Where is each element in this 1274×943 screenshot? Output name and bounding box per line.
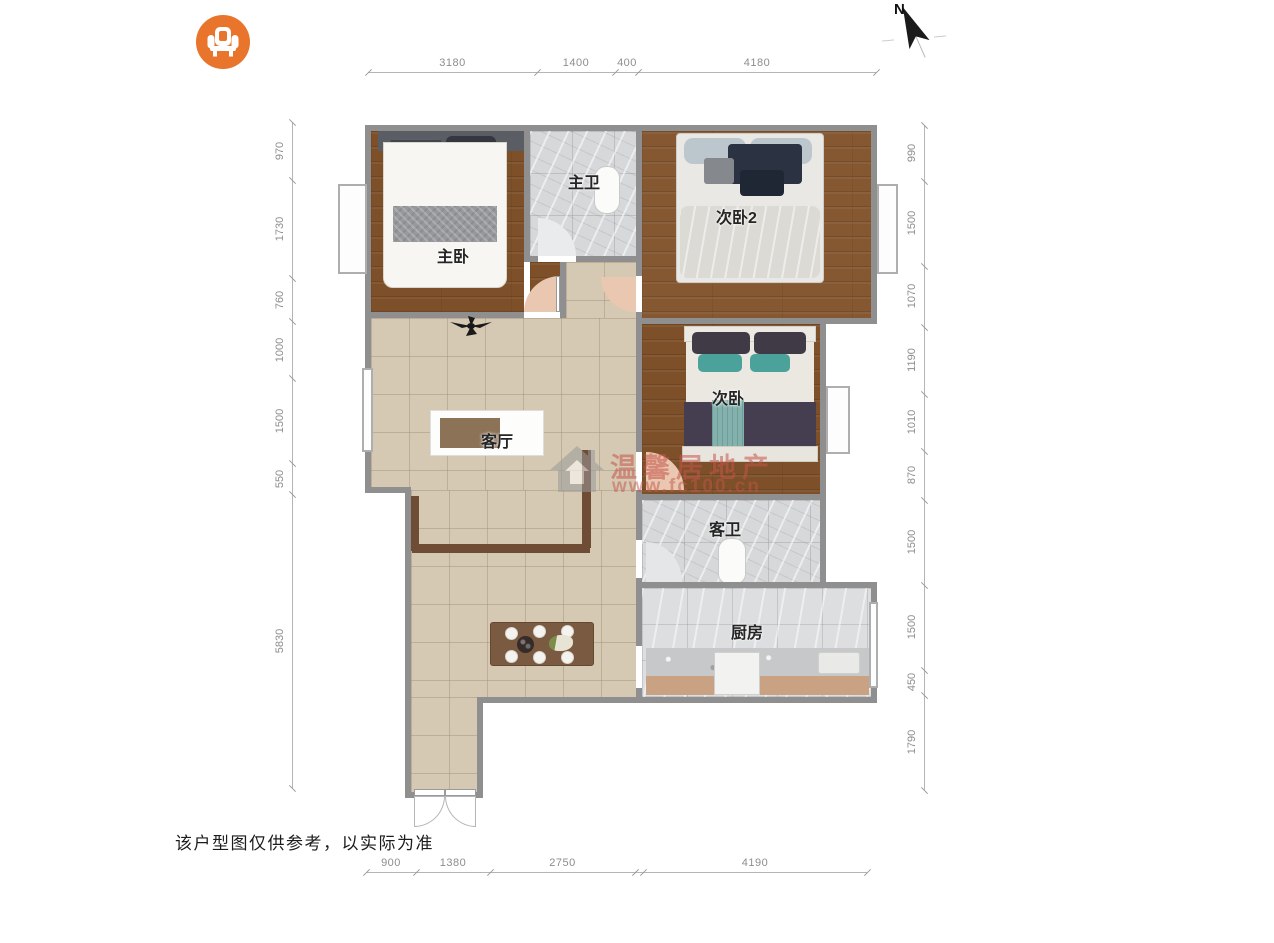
plate (561, 651, 574, 664)
armchair-icon (196, 15, 250, 69)
compass-n-label: N (894, 1, 905, 18)
watermark: 温馨居地产 www.fc100.cn (548, 444, 808, 500)
wall-main-vert-1 (636, 125, 642, 276)
entry-door-swing-right (445, 796, 476, 827)
dim-left-1: 970 (274, 142, 286, 160)
dim-left-3: 760 (274, 291, 286, 309)
entry-door-leaf-right (445, 789, 476, 796)
floor-entry-column (411, 697, 477, 792)
watermark-house-icon (548, 444, 606, 496)
plate (533, 651, 546, 664)
bay-window-left (338, 184, 367, 274)
label-bedroom2: 次卧2 (716, 204, 757, 228)
dim-right-7: 1500 (906, 530, 918, 554)
master-bed-blanket (393, 206, 497, 242)
bedroom-blanket (684, 402, 816, 448)
dim-left-2: 1730 (274, 217, 286, 241)
wall-bedroom-right (820, 324, 826, 588)
wall-bath-left (524, 125, 530, 262)
dim-left-6: 550 (274, 470, 286, 488)
label-master-bath: 主卫 (568, 169, 600, 193)
entry-door-swing-left (414, 796, 445, 827)
bedroom-window-right (826, 386, 850, 454)
ceiling-fan-icon (448, 314, 494, 338)
wall-kitchen-bottom (483, 697, 877, 703)
bedroom-pillow-teal-left (698, 354, 742, 372)
wall-main-vert-4 (636, 578, 642, 646)
bedroom2-cushion (704, 158, 734, 184)
plate (533, 625, 546, 638)
dim-right-9: 450 (906, 673, 918, 691)
wall-bedroom2-bottom (642, 318, 877, 324)
dim-right-10: 1790 (906, 730, 918, 754)
dim-bottom-2: 1380 (416, 857, 490, 869)
plate (505, 627, 518, 640)
label-guest-bath: 客卫 (709, 516, 741, 540)
dim-bottom-4: 4190 (643, 857, 867, 869)
dim-top-4: 4180 (638, 57, 876, 69)
dim-bottom-3: 2750 (490, 857, 635, 869)
wall-entry-a (405, 792, 414, 798)
dining-dish (517, 636, 534, 653)
watermark-url: www.fc100.cn (612, 476, 761, 498)
wall-master-bottom (365, 312, 524, 318)
dim-bottom-1: 900 (366, 857, 416, 869)
dim-right-8: 1500 (906, 615, 918, 639)
brand-logo (196, 15, 250, 69)
wall-top (365, 125, 877, 131)
bedroom-pillow-dark-right (754, 332, 806, 354)
kitchen-cabinet (714, 652, 760, 695)
kitchen-window-right (869, 602, 878, 688)
dim-left-4: 1000 (274, 338, 286, 362)
label-living: 客厅 (481, 428, 513, 452)
wall-bath-bottom-b (576, 256, 642, 262)
disclaimer-text: 该户型图仅供参考，以实际为准 (175, 829, 434, 854)
dim-right-1: 990 (906, 144, 918, 162)
bedroom-pillow-dark-left (692, 332, 750, 354)
dim-left-7: 5830 (274, 629, 286, 653)
dim-top-1: 3180 (368, 57, 537, 69)
master-bedroom-door-leaf (556, 276, 560, 312)
guest-bath-toilet (718, 538, 746, 584)
bedroom-pillow-teal-right (750, 354, 790, 372)
label-master-bedroom: 主卧 (437, 243, 469, 267)
dim-right-3: 1070 (906, 284, 918, 308)
north-compass: N (878, 0, 950, 70)
bay-window-right (877, 184, 898, 274)
dim-right-5: 1010 (906, 410, 918, 434)
label-bedroom: 次卧 (712, 385, 744, 409)
dining-food (549, 635, 573, 651)
dim-right-4: 1190 (906, 348, 918, 372)
sofa-frame-bottom (412, 544, 590, 553)
wall-corridor-west (560, 262, 566, 318)
bedroom2-clothes-2 (740, 170, 784, 196)
wall-bath-bottom-a (530, 256, 538, 262)
compass-needle-icon (878, 0, 950, 70)
wall-main-vert-2 (636, 312, 642, 452)
entry-door-leaf-left (414, 789, 445, 796)
living-window-left (362, 368, 373, 452)
label-kitchen: 厨房 (731, 619, 763, 643)
dim-top-2: 1400 (537, 57, 615, 69)
dim-right-2: 1500 (906, 211, 918, 235)
plate (505, 650, 518, 663)
wall-column-right (477, 697, 483, 798)
dim-left-5: 1500 (274, 409, 286, 433)
sofa-frame-left (410, 496, 419, 551)
wall-lower-left (405, 487, 411, 798)
kitchen-sink (818, 652, 860, 674)
wall-kitchen-top (642, 582, 877, 588)
dim-right-6: 870 (906, 466, 918, 484)
